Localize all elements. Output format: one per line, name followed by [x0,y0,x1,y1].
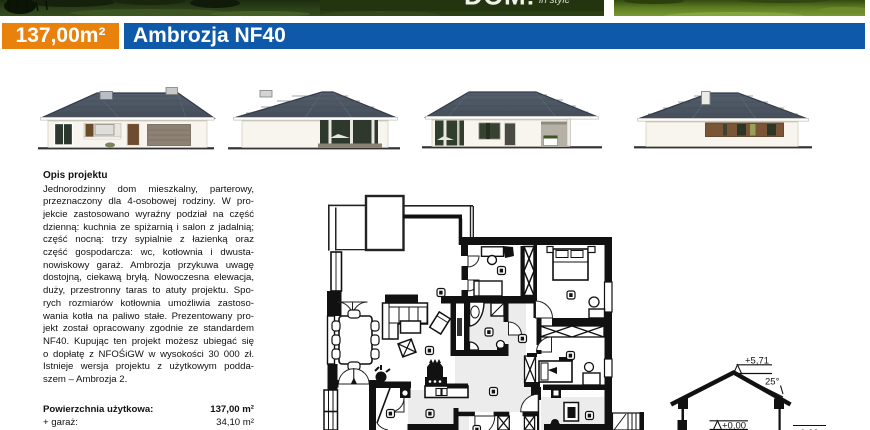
svg-text:+5,71: +5,71 [745,356,769,367]
svg-text:in style: in style [539,0,571,6]
svg-text:25°: 25° [765,377,780,388]
svg-text:DOM!: DOM! [464,0,535,11]
svg-text:+0,00: +0,00 [722,421,746,430]
